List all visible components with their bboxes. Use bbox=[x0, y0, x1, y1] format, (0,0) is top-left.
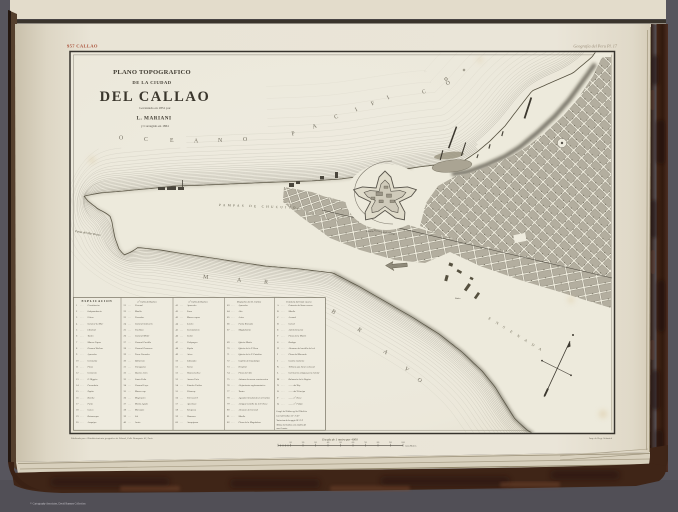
svg-text:—— 1.º Felipe: —— 1.º Felipe bbox=[288, 403, 303, 406]
svg-text:Plaza de la Magdalena: Plaza de la Magdalena bbox=[238, 421, 262, 424]
svg-text:Iglesia Matriz: Iglesia Matriz bbox=[238, 341, 253, 344]
svg-text:. . .: . . . bbox=[128, 385, 131, 387]
svg-text:Manco Capac: Manco Capac bbox=[87, 341, 102, 344]
svg-text:General Gamarra: General Gamarra bbox=[135, 347, 153, 350]
svg-text:PLANO TOPOGRAFICO: PLANO TOPOGRAFICO bbox=[113, 69, 191, 76]
svg-text:. . .: . . . bbox=[282, 354, 285, 356]
svg-text:© Cartography Associates, Davi: © Cartography Associates, David Rumsey C… bbox=[30, 503, 86, 506]
svg-text:Estancia del buen suceso: Estancia del buen suceso bbox=[288, 304, 314, 307]
svg-text:. . .: . . . bbox=[282, 367, 285, 369]
svg-text:Plaza del Mercado: Plaza del Mercado bbox=[288, 353, 308, 356]
svg-text:Teatro: Teatro bbox=[239, 390, 246, 393]
svg-text:Magdalenita: Magdalenita bbox=[238, 329, 252, 332]
svg-text:Capilla de Guadalupe: Capilla de Guadalupe bbox=[239, 359, 260, 362]
svg-text:J: J bbox=[277, 359, 278, 362]
svg-text:Manco capac: Manco capac bbox=[186, 316, 201, 319]
svg-text:Bellavista: Bellavista bbox=[135, 359, 145, 362]
svg-text:. . .: . . . bbox=[232, 397, 235, 399]
svg-text:. . .: . . . bbox=[180, 422, 183, 424]
svg-text:Huanuco: Huanuco bbox=[186, 415, 197, 418]
svg-text:Huancavelica: Huancavelica bbox=[186, 372, 201, 375]
svg-text:. . .: . . . bbox=[180, 305, 183, 307]
svg-text:. . .: . . . bbox=[128, 317, 131, 319]
svg-text:O: O bbox=[119, 136, 123, 142]
svg-text:. . .: . . . bbox=[232, 404, 235, 406]
svg-text:G: G bbox=[277, 341, 279, 344]
svg-text:Estados Unidos: Estados Unidos bbox=[186, 384, 202, 387]
svg-text:—— del Principe: —— del Principe bbox=[288, 390, 306, 393]
svg-text:E: E bbox=[170, 138, 174, 144]
svg-text:C: C bbox=[144, 137, 148, 143]
svg-text:. . .: . . . bbox=[128, 305, 131, 307]
svg-text:—— 2.º Rosa: —— 2.º Rosa bbox=[288, 396, 303, 399]
svg-text:O Higgins: O Higgins bbox=[88, 378, 98, 381]
svg-text:Comercio: Comercio bbox=[88, 372, 98, 375]
svg-text:. . .: . . . bbox=[180, 379, 183, 381]
svg-text:L. MARIANI: L. MARIANI bbox=[137, 116, 172, 122]
svg-text:. . .: . . . bbox=[128, 360, 131, 362]
svg-text:Saboyako: Saboyako bbox=[187, 359, 197, 362]
svg-text:Carcel: Carcel bbox=[289, 322, 296, 325]
svg-text:100: 100 bbox=[289, 442, 292, 444]
svg-text:. . .: . . . bbox=[128, 391, 131, 393]
svg-text:. . .: . . . bbox=[128, 404, 131, 406]
svg-text:Ferrocarril: Ferrocarril bbox=[186, 396, 198, 399]
svg-text:. . .: . . . bbox=[232, 330, 235, 332]
svg-text:. . .: . . . bbox=[128, 348, 131, 350]
svg-text:Constelacion: Constelacion bbox=[187, 329, 200, 332]
svg-text:K: K bbox=[277, 366, 279, 369]
svg-text:. . .: . . . bbox=[282, 348, 285, 350]
svg-text:Geografia del Peru Pl. 17: Geografia del Peru Pl. 17 bbox=[573, 44, 618, 49]
svg-text:. . .: . . . bbox=[81, 354, 84, 356]
svg-text:Junin: Junin bbox=[135, 421, 141, 424]
svg-text:. . .: . . . bbox=[81, 348, 84, 350]
svg-text:Bodega: Bodega bbox=[289, 341, 297, 344]
svg-text:. . .: . . . bbox=[81, 416, 84, 418]
svg-text:. . .: . . . bbox=[232, 348, 235, 350]
svg-text:mar 6 metro: mar 6 metro bbox=[277, 427, 289, 430]
svg-text:900: 900 bbox=[389, 442, 392, 444]
svg-text:Muelle: Muelle bbox=[288, 310, 296, 313]
svg-text:. . .: . . . bbox=[128, 354, 131, 356]
svg-text:Galapagos: Galapagos bbox=[187, 341, 198, 344]
svg-text:. . .: . . . bbox=[282, 379, 285, 381]
svg-text:O: O bbox=[243, 137, 247, 143]
svg-text:. . .: . . . bbox=[180, 367, 183, 369]
svg-text:General Luyo: General Luyo bbox=[135, 384, 149, 387]
svg-text:. . .: . . . bbox=[81, 323, 84, 325]
svg-text:—— del Rey: —— del Rey bbox=[288, 384, 302, 387]
svg-text:ESPLICACION: ESPLICACION bbox=[82, 299, 113, 303]
svg-text:Manco cap: Manco cap bbox=[134, 390, 146, 393]
svg-text:. . .: . . . bbox=[232, 305, 235, 307]
svg-text:Aguada introducida en el Calla: Aguada introducida en el Callao bbox=[238, 396, 271, 399]
svg-text:. . .: . . . bbox=[81, 410, 84, 412]
svg-text:O: O bbox=[277, 390, 279, 393]
svg-text:. . .: . . . bbox=[180, 348, 183, 350]
svg-text:A: A bbox=[277, 304, 279, 307]
svg-text:Muelle: Muelle bbox=[238, 415, 246, 418]
svg-text:. . .: . . . bbox=[128, 379, 131, 381]
svg-text:. . .: . . . bbox=[232, 360, 235, 362]
svg-text:Aduana de nueva construccion: Aduana de nueva construccion bbox=[238, 378, 269, 381]
svg-text:Tacna: Tacna bbox=[187, 366, 194, 369]
svg-text:Bomba: Bomba bbox=[88, 396, 96, 399]
svg-text:Pachitea: Pachitea bbox=[134, 329, 144, 332]
svg-text:Tribuna que haran colocad: Tribuna que haran colocad bbox=[289, 366, 316, 369]
svg-text:General Castilla: General Castilla bbox=[135, 341, 152, 344]
svg-text:Teatro: Teatro bbox=[88, 335, 95, 338]
svg-text:Botonesque: Botonesque bbox=[88, 415, 99, 418]
svg-text:Ayacucho: Ayacucho bbox=[238, 304, 249, 307]
svg-text:Mercedes: Mercedes bbox=[134, 409, 144, 412]
svg-text:Lima: Lima bbox=[186, 310, 193, 313]
svg-text:. . .: . . . bbox=[81, 311, 84, 313]
svg-text:Administracion: Administracion bbox=[288, 329, 305, 332]
svg-text:. . .: . . . bbox=[128, 416, 131, 418]
svg-text:. . .: . . . bbox=[282, 317, 285, 319]
svg-text:. . .: . . . bbox=[232, 373, 235, 375]
svg-text:. . .: . . . bbox=[128, 336, 131, 338]
svg-text:Mogroyero: Mogroyero bbox=[134, 396, 146, 399]
svg-text:. . .: . . . bbox=[180, 416, 183, 418]
svg-text:. . .: . . . bbox=[81, 305, 84, 307]
svg-text:. . .: . . . bbox=[180, 360, 183, 362]
svg-text:. . .: . . . bbox=[81, 379, 84, 381]
svg-text:. . .: . . . bbox=[180, 342, 183, 344]
svg-text:. . .: . . . bbox=[128, 410, 131, 412]
svg-text:. . .: . . . bbox=[81, 385, 84, 387]
svg-text:. . .: . . . bbox=[282, 305, 285, 307]
svg-text:Tarapaca: Tarapaca bbox=[187, 409, 197, 412]
svg-text:. . .: . . . bbox=[232, 379, 235, 381]
svg-text:Baños: Baños bbox=[455, 297, 461, 300]
svg-text:. . .: . . . bbox=[81, 397, 84, 399]
svg-text:. . .: . . . bbox=[180, 311, 183, 313]
svg-text:. . .: . . . bbox=[128, 323, 131, 325]
svg-text:Torre Gonzales: Torre Gonzales bbox=[135, 353, 150, 356]
svg-text:y Corregido en 1861: y Corregido en 1861 bbox=[141, 124, 169, 128]
svg-text:. . .: . . . bbox=[81, 336, 84, 338]
svg-text:. . .: . . . bbox=[232, 317, 235, 319]
svg-text:. . .: . . . bbox=[128, 330, 131, 332]
svg-text:. . .: . . . bbox=[282, 397, 285, 399]
svg-text:R: R bbox=[264, 280, 269, 286]
svg-text:H: H bbox=[277, 347, 279, 350]
svg-text:General Miller: General Miller bbox=[135, 335, 149, 338]
svg-text:Escala de 1 metro por 4000: Escala de 1 metro por 4000 bbox=[321, 438, 358, 442]
svg-text:Coronel: Coronel bbox=[135, 304, 143, 307]
svg-text:Cuarte moderno: Cuarte moderno bbox=[289, 359, 306, 362]
svg-text:Imp. de Rege Schmied: Imp. de Rege Schmied bbox=[589, 437, 613, 440]
svg-text:300: 300 bbox=[314, 442, 317, 444]
svg-text:. . .: . . . bbox=[81, 373, 84, 375]
svg-text:Apurimac: Apurimac bbox=[186, 403, 197, 406]
svg-text:Arequipa: Arequipa bbox=[87, 421, 98, 424]
svg-text:. . .: . . . bbox=[232, 391, 235, 393]
svg-text:. . .: . . . bbox=[180, 385, 183, 387]
svg-text:. . .: . . . bbox=[81, 422, 84, 424]
svg-text:. . .: . . . bbox=[282, 336, 285, 338]
svg-text:. . .: . . . bbox=[128, 373, 131, 375]
svg-text:Punta Brenada: Punta Brenada bbox=[238, 322, 254, 325]
svg-text:Hospital: Hospital bbox=[238, 366, 248, 369]
svg-text:Pescador: Pescador bbox=[134, 316, 144, 319]
svg-text:Carniceria antigua para inclui: Carniceria antigua para incluid bbox=[289, 372, 321, 375]
svg-text:Almacen del castillo del sol: Almacen del castillo del sol bbox=[288, 347, 316, 350]
svg-text:. . .: . . . bbox=[128, 367, 131, 369]
svg-text:General La Mar: General La Mar bbox=[88, 322, 104, 325]
svg-text:Arequipana: Arequipana bbox=[186, 421, 199, 424]
svg-text:Colon: Colon bbox=[187, 335, 194, 338]
svg-text:Arica: Arica bbox=[186, 353, 193, 356]
svg-text:. . .: . . . bbox=[180, 330, 183, 332]
svg-text:. . .: . . . bbox=[81, 330, 84, 332]
svg-text:Variacion de la aguja 10° 0' E: Variacion de la aguja 10° 0' E bbox=[277, 419, 304, 422]
svg-text:Zepita: Zepita bbox=[88, 390, 95, 393]
svg-text:. . .: . . . bbox=[282, 391, 285, 393]
svg-text:Buenos Aires: Buenos Aires bbox=[135, 372, 148, 375]
svg-text:. . .: . . . bbox=[232, 416, 235, 418]
svg-text:Balneario de la Regina: Balneario de la Regina bbox=[289, 378, 312, 381]
svg-text:. . .: . . . bbox=[180, 323, 183, 325]
svg-text:Almacen de Coronel: Almacen de Coronel bbox=[238, 409, 259, 412]
svg-text:. . .: . . . bbox=[128, 342, 131, 344]
svg-text:DEL CALLAO: DEL CALLAO bbox=[100, 89, 211, 105]
svg-text:Antigua Castillo de la P. Rosa: Antigua Castillo de la P. Rosa bbox=[238, 403, 269, 406]
svg-text:Arica: Arica bbox=[238, 316, 245, 319]
svg-text:D: D bbox=[277, 322, 279, 325]
svg-text:Union: Union bbox=[88, 316, 95, 319]
svg-text:Q: Q bbox=[277, 403, 279, 406]
svg-text:200: 200 bbox=[302, 442, 305, 444]
svg-text:. . .: . . . bbox=[232, 323, 235, 325]
svg-text:1000: 1000 bbox=[401, 442, 405, 444]
svg-text:Cuzco: Cuzco bbox=[88, 409, 95, 412]
svg-text:Muelle: Muelle bbox=[134, 310, 142, 313]
svg-text:. . .: . . . bbox=[180, 391, 183, 393]
svg-text:Levantado en 1851 por: Levantado en 1851 por bbox=[139, 106, 171, 110]
svg-text:. . .: . . . bbox=[282, 311, 285, 313]
svg-text:. . .: . . . bbox=[232, 354, 235, 356]
svg-text:Alojamiento reglamentarios: Alojamiento reglamentarios bbox=[238, 384, 266, 387]
svg-text:Independencia: Independencia bbox=[87, 310, 103, 313]
svg-text:Alto: Alto bbox=[238, 310, 244, 313]
svg-text:Arenas Unio: Arenas Unio bbox=[186, 378, 200, 381]
svg-text:Plaza de la Matriz: Plaza de la Matriz bbox=[288, 335, 307, 338]
svg-text:Loreto: Loreto bbox=[186, 322, 194, 325]
svg-text:Plaza: Plaza bbox=[87, 366, 94, 369]
svg-text:. . .: . . . bbox=[180, 410, 183, 412]
svg-text:. . .: . . . bbox=[232, 385, 235, 387]
svg-text:Constitucion: Constitucion bbox=[88, 304, 101, 307]
svg-text:. . .: . . . bbox=[282, 404, 285, 406]
svg-text:. . .: . . . bbox=[81, 367, 84, 369]
svg-text:Chancay: Chancay bbox=[187, 390, 196, 393]
svg-text:. . .: . . . bbox=[282, 330, 285, 332]
svg-text:. . .: . . . bbox=[180, 404, 183, 406]
svg-text:Sol: Sol bbox=[135, 415, 138, 418]
svg-text:. . .: . . . bbox=[180, 336, 183, 338]
svg-text:. . .: . . . bbox=[81, 342, 84, 344]
svg-text:. . .: . . . bbox=[232, 342, 235, 344]
svg-text:Iglesia de la P. Rosa: Iglesia de la P. Rosa bbox=[238, 347, 259, 350]
svg-text:Lat.l del Callao 12° 3' 42": Lat.l del Callao 12° 3' 42" bbox=[276, 415, 300, 418]
svg-text:. . .: . . . bbox=[81, 404, 84, 406]
svg-text:. . .: . . . bbox=[282, 342, 285, 344]
svg-text:Paita: Paita bbox=[87, 403, 94, 406]
svg-text:Pescaderia: Pescaderia bbox=[87, 384, 100, 387]
svg-text:. . .: . . . bbox=[180, 397, 183, 399]
svg-text:General Bolivar: General Bolivar bbox=[88, 347, 104, 350]
svg-text:. . .: . . . bbox=[282, 373, 285, 375]
svg-text:700: 700 bbox=[364, 442, 367, 444]
svg-text:500: 500 bbox=[339, 442, 342, 444]
svg-text:. . .: . . . bbox=[81, 391, 84, 393]
svg-text:varas Metros: varas Metros bbox=[405, 446, 417, 448]
svg-text:. . .: . . . bbox=[282, 385, 285, 387]
svg-text:. . .: . . . bbox=[232, 410, 235, 412]
svg-text:Publicado por el Establecimien: Publicado por el Establecimiento geograf… bbox=[71, 437, 153, 440]
svg-text:Zepita: Zepita bbox=[187, 347, 194, 350]
svg-text:Santa Celia: Santa Celia bbox=[135, 378, 147, 381]
svg-text:Paraguana: Paraguana bbox=[134, 366, 147, 369]
svg-text:Arsenal: Arsenal bbox=[288, 316, 297, 319]
svg-text:Ayacucho: Ayacucho bbox=[186, 304, 197, 307]
svg-text:. . .: . . . bbox=[128, 422, 131, 424]
svg-text:. . .: . . . bbox=[232, 367, 235, 369]
svg-text:Plaza del Alto: Plaza del Alto bbox=[238, 372, 253, 375]
svg-text:Libertad: Libertad bbox=[87, 329, 97, 332]
svg-text:. . .: . . . bbox=[81, 360, 84, 362]
svg-text:. . .: . . . bbox=[232, 422, 235, 424]
svg-text:Monte Agudo: Monte Agudo bbox=[134, 403, 149, 406]
svg-text:Castillo: Castillo bbox=[366, 230, 374, 233]
svg-text:. . .: . . . bbox=[128, 397, 131, 399]
svg-text:. . .: . . . bbox=[232, 311, 235, 313]
svg-text:Marea del Callao casi estable: Marea del Callao casi estable del bbox=[276, 424, 307, 427]
svg-text:Long.l del Callao og.'de l'Obs: Long.l del Callao og.'de l'Obs.Lim bbox=[276, 411, 308, 413]
svg-text:DE LA CIUDAD: DE LA CIUDAD bbox=[132, 80, 171, 85]
svg-text:. . .: . . . bbox=[81, 317, 84, 319]
svg-text:M: M bbox=[203, 275, 209, 281]
svg-text:N: N bbox=[277, 384, 279, 387]
svg-text:800: 800 bbox=[377, 442, 380, 444]
svg-text:. . .: . . . bbox=[180, 354, 183, 356]
svg-text:. . .: . . . bbox=[282, 323, 285, 325]
svg-text:. . .: . . . bbox=[180, 373, 183, 375]
svg-text:400: 400 bbox=[327, 442, 330, 444]
svg-text:957 CALLAO: 957 CALLAO bbox=[67, 44, 98, 49]
svg-text:. . .: . . . bbox=[180, 317, 183, 319]
svg-text:. . .: . . . bbox=[282, 360, 285, 362]
svg-text:. . .: . . . bbox=[128, 311, 131, 313]
svg-text:General Salaverry: General Salaverry bbox=[135, 322, 154, 325]
svg-text:Ayacucho: Ayacucho bbox=[87, 353, 98, 356]
svg-text:Constante: Constante bbox=[88, 359, 98, 362]
svg-text:600: 600 bbox=[352, 442, 355, 444]
svg-text:Iglesia de la P. Catalina: Iglesia de la P. Catalina bbox=[238, 353, 263, 356]
